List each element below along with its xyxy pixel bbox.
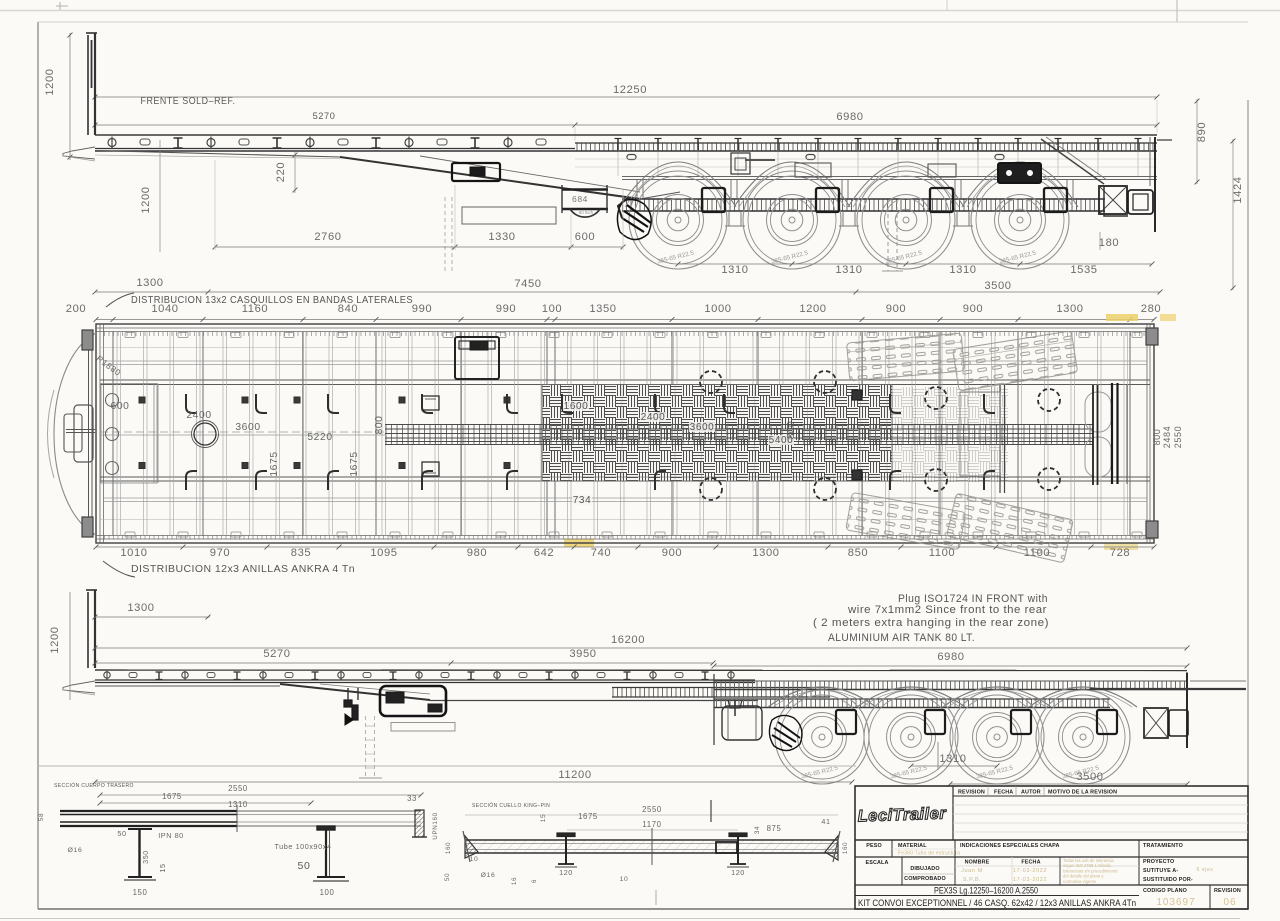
svg-text:17-03-2022: 17-03-2022 xyxy=(1013,877,1047,883)
svg-text:10: 10 xyxy=(470,856,479,863)
svg-text:740: 740 xyxy=(591,547,611,559)
svg-text:1000: 1000 xyxy=(704,303,731,315)
svg-text:7450: 7450 xyxy=(514,278,541,290)
svg-text:800: 800 xyxy=(374,416,385,435)
svg-text:1675: 1675 xyxy=(269,451,280,476)
svg-text:100: 100 xyxy=(320,888,335,897)
svg-text:350: 350 xyxy=(141,850,150,864)
svg-text:2484: 2484 xyxy=(1162,426,1172,448)
svg-text:100: 100 xyxy=(542,303,562,315)
svg-text:1010: 1010 xyxy=(120,547,147,559)
svg-text:PEX3S Lg.12250–16200 A.2550: PEX3S Lg.12250–16200 A.2550 xyxy=(934,886,1038,896)
svg-text:FRENTE SOLD–REF.: FRENTE SOLD–REF. xyxy=(141,96,236,107)
svg-text:Juan M: Juan M xyxy=(961,868,983,874)
svg-text:1300: 1300 xyxy=(127,602,154,614)
svg-text:2400: 2400 xyxy=(186,410,211,421)
svg-text:Ø16: Ø16 xyxy=(481,872,496,879)
svg-text:06: 06 xyxy=(1223,897,1236,908)
svg-text:2760: 2760 xyxy=(314,231,341,243)
svg-text:Tube 100x90x4: Tube 100x90x4 xyxy=(274,842,331,851)
svg-text:SECCIÓN CUELLO KING–PIN: SECCIÓN CUELLO KING–PIN xyxy=(472,802,550,809)
svg-text:10: 10 xyxy=(620,876,629,883)
svg-text:600: 600 xyxy=(111,401,130,412)
svg-text:6980: 6980 xyxy=(937,651,964,663)
svg-text:150: 150 xyxy=(133,888,148,897)
svg-text:ESCALA: ESCALA xyxy=(865,860,888,866)
svg-text:6980: 6980 xyxy=(836,111,863,123)
svg-text:642: 642 xyxy=(534,547,554,559)
svg-text:980: 980 xyxy=(467,547,487,559)
svg-text:50: 50 xyxy=(444,873,451,881)
svg-text:KIT CONVOI EXCEPTIONNEL / 46 C: KIT CONVOI EXCEPTIONNEL / 46 CASQ. 62x42… xyxy=(858,898,1136,908)
svg-text:200: 200 xyxy=(66,303,86,315)
svg-text:FECHA: FECHA xyxy=(1021,860,1040,866)
svg-text:3950: 3950 xyxy=(569,648,596,660)
svg-text:1600: 1600 xyxy=(564,401,589,412)
svg-text:IPN 80: IPN 80 xyxy=(158,831,184,840)
svg-text:1675: 1675 xyxy=(162,792,182,801)
svg-text:wire 7x1mm2 Since front to: wire 7x1mm2 Since front to the rear xyxy=(847,604,1047,616)
svg-text:TRATAMIENTO: TRATAMIENTO xyxy=(1143,843,1183,849)
svg-text:1310: 1310 xyxy=(949,264,976,276)
svg-text:UPN160: UPN160 xyxy=(432,812,439,839)
svg-text:NOMBRE: NOMBRE xyxy=(965,860,990,866)
svg-text:160: 160 xyxy=(445,842,452,854)
svg-text:280: 280 xyxy=(1141,303,1161,315)
svg-text:1040: 1040 xyxy=(151,303,178,315)
svg-text:MOTIVO DE LA REVISION: MOTIVO DE LA REVISION xyxy=(1048,790,1117,796)
svg-text:1300: 1300 xyxy=(1056,303,1083,315)
svg-text:FECHA: FECHA xyxy=(994,790,1013,796)
svg-text:1535: 1535 xyxy=(1070,264,1097,276)
svg-text:34: 34 xyxy=(754,826,761,835)
svg-text:6: 6 xyxy=(531,879,538,883)
svg-text:2550: 2550 xyxy=(228,784,248,793)
svg-text:S.P.B.: S.P.B. xyxy=(963,877,981,883)
svg-text:900: 900 xyxy=(886,303,906,315)
svg-text:835: 835 xyxy=(291,547,311,559)
svg-text:970: 970 xyxy=(210,547,230,559)
svg-text:800: 800 xyxy=(1152,429,1162,446)
svg-text:1170: 1170 xyxy=(642,820,661,829)
svg-text:80 lts/h: 80 lts/h xyxy=(579,210,594,215)
svg-text:900: 900 xyxy=(963,303,983,315)
svg-text:850: 850 xyxy=(848,547,868,559)
svg-text:220: 220 xyxy=(275,162,287,182)
svg-text:16: 16 xyxy=(511,877,518,885)
svg-text:1675: 1675 xyxy=(578,812,598,821)
svg-text:PROYECTO: PROYECTO xyxy=(1143,859,1174,865)
svg-text:1300: 1300 xyxy=(136,277,163,289)
svg-text:normativa vigente: normativa vigente xyxy=(1063,879,1097,884)
svg-text:5270: 5270 xyxy=(313,111,336,121)
svg-text:1310: 1310 xyxy=(721,264,748,276)
svg-text:50: 50 xyxy=(117,829,126,838)
svg-text:DISTRIBUCION 12x3 ANILLAS A: DISTRIBUCION 12x3 ANILLAS ANKRA 4 Tn xyxy=(131,564,355,575)
svg-text:LeciTrailer: LeciTrailer xyxy=(857,804,947,825)
svg-text:890: 890 xyxy=(1196,122,1208,142)
svg-text:1310: 1310 xyxy=(228,800,248,809)
svg-text:PESO: PESO xyxy=(866,843,882,849)
svg-text:3600: 3600 xyxy=(690,422,715,433)
svg-text:1200: 1200 xyxy=(44,68,56,95)
svg-text:600: 600 xyxy=(575,231,595,243)
svg-text:1095: 1095 xyxy=(370,547,397,559)
svg-text:875: 875 xyxy=(767,824,782,833)
svg-text:17-03-2022: 17-03-2022 xyxy=(1013,868,1047,874)
svg-text:15: 15 xyxy=(540,814,547,823)
svg-text:COMPROBADO: COMPROBADO xyxy=(904,876,946,882)
svg-text:INDICACIONES ESPECIALES CHAPA: INDICACIONES ESPECIALES CHAPA xyxy=(960,843,1060,849)
svg-text:MATERIAL: MATERIAL xyxy=(898,843,927,849)
svg-text:58: 58 xyxy=(38,813,45,821)
svg-text:3500: 3500 xyxy=(1076,771,1103,783)
svg-text:REVISION: REVISION xyxy=(1214,888,1241,894)
svg-text:SECCIÓN CUERPO TRASERO: SECCIÓN CUERPO TRASERO xyxy=(54,782,134,789)
svg-text:684: 684 xyxy=(572,194,588,204)
svg-text:DIBUJADO: DIBUJADO xyxy=(910,866,939,872)
svg-text:2550: 2550 xyxy=(1173,426,1183,448)
svg-text:800: 800 xyxy=(786,421,797,440)
svg-text:1100: 1100 xyxy=(1024,547,1050,559)
svg-text:1310: 1310 xyxy=(835,264,862,276)
svg-text:ALUMINIUM AIR TANK 80 LT.: ALUMINIUM AIR TANK 80 LT. xyxy=(828,632,975,644)
svg-text:6 ejes: 6 ejes xyxy=(1197,867,1214,873)
svg-text:SUTITUYE A-: SUTITUYE A- xyxy=(1143,868,1178,874)
svg-text:900: 900 xyxy=(662,547,682,559)
svg-text:1350: 1350 xyxy=(589,303,616,315)
svg-text:11200: 11200 xyxy=(558,769,591,781)
svg-text:3600: 3600 xyxy=(235,422,260,433)
svg-text:3500: 3500 xyxy=(984,280,1011,292)
svg-text:16200: 16200 xyxy=(611,634,645,646)
svg-text:1675: 1675 xyxy=(349,451,360,476)
svg-text:1424: 1424 xyxy=(1232,176,1244,203)
svg-text:120: 120 xyxy=(731,868,745,877)
svg-text:1310: 1310 xyxy=(939,753,966,765)
svg-text:1200: 1200 xyxy=(799,303,826,315)
svg-text:50: 50 xyxy=(298,860,311,872)
svg-text:1100: 1100 xyxy=(929,547,955,559)
svg-text:41: 41 xyxy=(821,817,830,826)
svg-text:AUTOR: AUTOR xyxy=(1021,790,1041,796)
svg-text:12250: 12250 xyxy=(613,84,647,96)
svg-text:SUSTITUIDO POR-: SUSTITUIDO POR- xyxy=(1143,877,1193,883)
svg-text:Ø16: Ø16 xyxy=(68,847,83,854)
svg-text:103697: 103697 xyxy=(1156,897,1195,908)
svg-text:2550: 2550 xyxy=(642,805,662,814)
svg-text:840: 840 xyxy=(338,303,358,315)
svg-text:160: 160 xyxy=(842,842,849,854)
svg-text:CODIGO PLANO: CODIGO PLANO xyxy=(1143,888,1187,894)
svg-text:5270: 5270 xyxy=(263,648,290,660)
svg-text:990: 990 xyxy=(412,303,432,315)
svg-text:728: 728 xyxy=(1110,547,1130,559)
svg-text:2400: 2400 xyxy=(641,412,666,423)
svg-text:180: 180 xyxy=(1099,237,1119,249)
svg-text:120: 120 xyxy=(559,868,573,877)
svg-text:REVISION: REVISION xyxy=(958,790,985,796)
svg-text:1300: 1300 xyxy=(752,547,779,559)
svg-text:1330: 1330 xyxy=(488,231,515,243)
svg-text:1200: 1200 xyxy=(140,186,152,213)
svg-text:990: 990 xyxy=(496,303,516,315)
svg-text:15: 15 xyxy=(158,863,167,872)
svg-text:1200: 1200 xyxy=(49,626,61,653)
svg-text:5220: 5220 xyxy=(307,432,332,443)
svg-text:734: 734 xyxy=(573,495,592,506)
svg-text:1160: 1160 xyxy=(242,303,268,315)
svg-text:33: 33 xyxy=(407,794,417,803)
svg-text:Fe360 Tubo de estructura: Fe360 Tubo de estructura xyxy=(898,851,960,857)
svg-text:( 2 meters extra hanging: ( 2 meters extra hanging in the rear zon… xyxy=(813,617,1049,629)
